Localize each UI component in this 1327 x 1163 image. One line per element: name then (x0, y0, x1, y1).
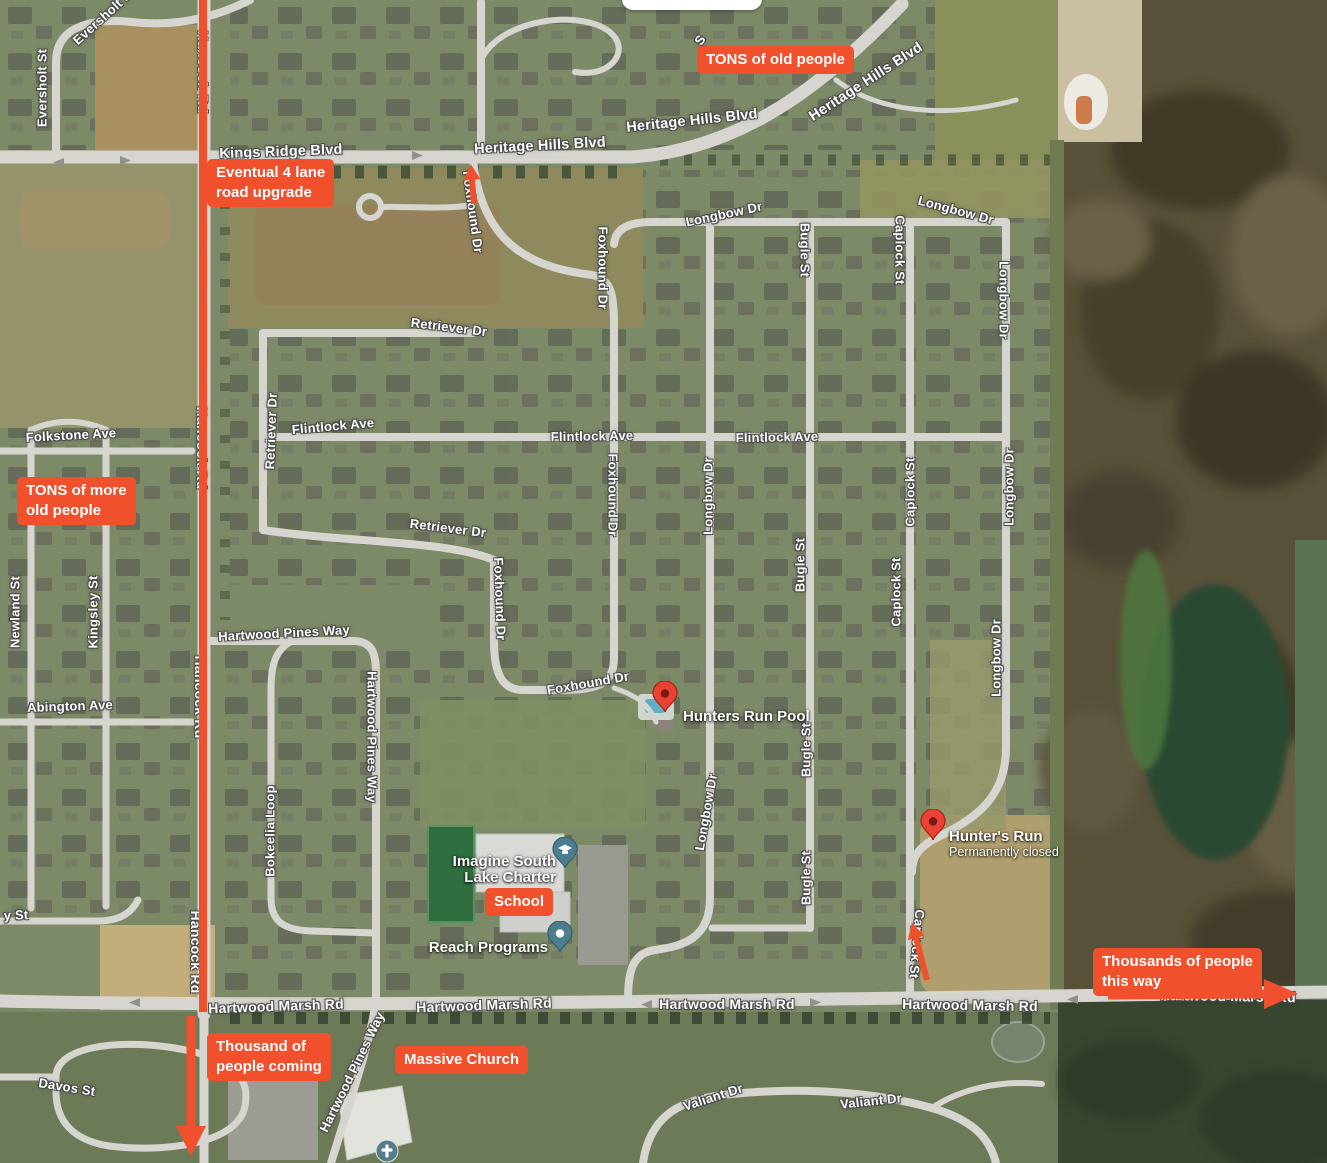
map-ui-pill-partial[interactable] (622, 0, 762, 10)
satellite-map-view[interactable]: Eversholt StEversholt StKings Ridge Blvd… (0, 0, 1327, 1163)
wetland-area (1040, 0, 1327, 1012)
satellite-map-canvas[interactable] (0, 0, 1327, 1163)
